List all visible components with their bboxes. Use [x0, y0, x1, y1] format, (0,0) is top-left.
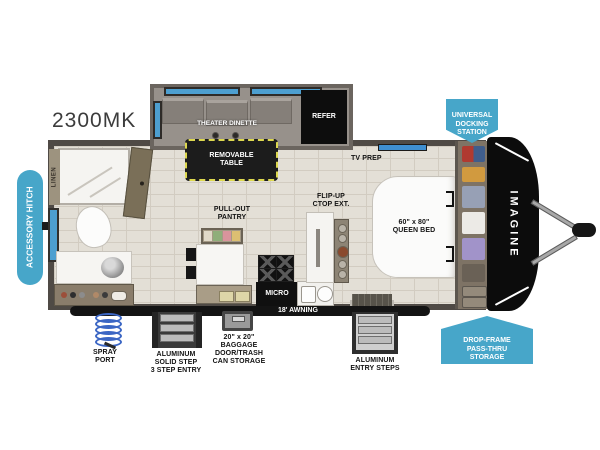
pantry-item: [223, 231, 231, 241]
pantry-item: [213, 231, 221, 241]
spray-port-coil-icon: [95, 313, 122, 347]
wardrobe-drawer: [462, 297, 487, 308]
hitch-coupler-icon: [572, 223, 596, 237]
refrigerator: REFER: [301, 90, 347, 144]
removable-table-label: REMOVABLE TABLE: [209, 152, 253, 168]
theater-dinette-label: THEATER DINETTE: [168, 120, 286, 127]
refer-label: REFER: [312, 113, 336, 121]
jar-icon: [338, 270, 347, 279]
baggage-door-icon: [222, 311, 253, 331]
pantry-item: [204, 231, 212, 241]
spray-port-label: SPRAY PORT: [82, 349, 128, 365]
wardrobe-item: [462, 167, 485, 182]
accessory-hitch-badge: ACCESSORY HITCH: [17, 170, 43, 285]
sink-basin-icon: [317, 286, 333, 302]
cabinet-front: [186, 248, 196, 261]
entry-mat: [352, 294, 392, 306]
drawer-icon: [219, 291, 234, 302]
queen-bed-label: 60" x 80" QUEEN BED: [393, 219, 436, 235]
valve-knob-icon: [102, 292, 108, 298]
pantry-item: [232, 231, 240, 241]
wardrobe-item: [462, 212, 485, 234]
baggage-label: 20" x 20" BAGGAGE DOOR/TRASH CAN STORAGE: [203, 334, 275, 366]
model-number-label: 2300MK: [52, 110, 136, 131]
brand-chevron-icon: [509, 373, 522, 386]
bathroom-sink-icon: [101, 257, 124, 278]
counter-groove: [316, 229, 320, 267]
awning-label: 18' AWNING: [278, 307, 318, 315]
valve-knob-icon: [61, 292, 67, 298]
island-drawers: [196, 285, 252, 304]
stove-burners-icon: [258, 255, 294, 282]
utility-hookup-panel: [54, 284, 134, 306]
linen-label: LINEN: [52, 167, 58, 188]
jar-icon: [338, 234, 347, 243]
valve-knob-icon: [70, 292, 76, 298]
shower-glass: [67, 167, 112, 196]
outlet-icon: [111, 291, 127, 301]
tv-prep-label: TV PREP: [351, 155, 397, 163]
valve-knob-icon: [93, 292, 99, 298]
tv-icon: [378, 144, 427, 151]
removable-table-callout: REMOVABLE TABLE: [185, 139, 278, 181]
queen-bed: 60" x 80" QUEEN BED: [372, 176, 456, 278]
accessory-hitch-label: ACCESSORY HITCH: [26, 187, 35, 269]
bed-light-icon: [446, 191, 454, 207]
universal-docking-label: UNIVERSAL DOCKING STATION: [452, 112, 492, 136]
entry-steps-label: ALUMINUM ENTRY STEPS: [332, 357, 418, 373]
jar-icon: [338, 260, 347, 269]
shower-glass: [89, 177, 121, 198]
pull-out-pantry: [201, 228, 243, 244]
drawer-icon: [235, 291, 250, 302]
wardrobe-item: [462, 264, 485, 282]
bed-light-icon: [446, 246, 454, 262]
door-handle-icon: [140, 181, 144, 185]
solid-step-icon: [152, 312, 202, 348]
kitchen-sink: [297, 281, 334, 306]
kitchen-peninsula-counter: [306, 212, 334, 283]
bathroom-vanity: [56, 251, 132, 284]
linen-cabinet: LINEN: [49, 149, 60, 205]
entry-steps-icon: [352, 312, 398, 354]
floorplan-canvas: 2300MK ACCESSORY HITCH THEATER DINETTE R…: [0, 0, 600, 450]
shower: [58, 148, 130, 205]
microwave-callout: MICRO: [256, 282, 298, 306]
window-icon: [164, 87, 240, 96]
front-wardrobe: [455, 141, 488, 309]
cabinet-front: [186, 266, 196, 279]
drop-frame-storage-label: DROP-FRAME PASS-THRU STORAGE: [463, 337, 510, 361]
jar-icon: [337, 246, 349, 258]
micro-label: MICRO: [265, 290, 288, 298]
wardrobe-item: [462, 146, 485, 162]
pantry-label: PULL-OUT PANTRY: [195, 206, 269, 222]
cupholder-icon: [232, 132, 239, 139]
kitchen-island: [196, 244, 244, 285]
cupholder-icon: [212, 132, 219, 139]
brand-imagine-label: IMAGINE: [487, 137, 539, 311]
wardrobe-item: [462, 186, 485, 208]
valve-knob-icon: [79, 292, 85, 298]
spice-rack: [334, 219, 349, 283]
front-cap: IMAGINE: [487, 137, 539, 311]
wardrobe-drawer: [462, 286, 487, 297]
wardrobe-item: [462, 238, 485, 260]
sink-basin-icon: [301, 286, 316, 303]
drop-frame-storage-badge: DROP-FRAME PASS-THRU STORAGE: [441, 316, 533, 364]
jar-icon: [338, 224, 347, 233]
window-icon: [153, 101, 162, 139]
flip-up-ctop-label: FLIP-UP CTOP EXT.: [305, 193, 357, 209]
